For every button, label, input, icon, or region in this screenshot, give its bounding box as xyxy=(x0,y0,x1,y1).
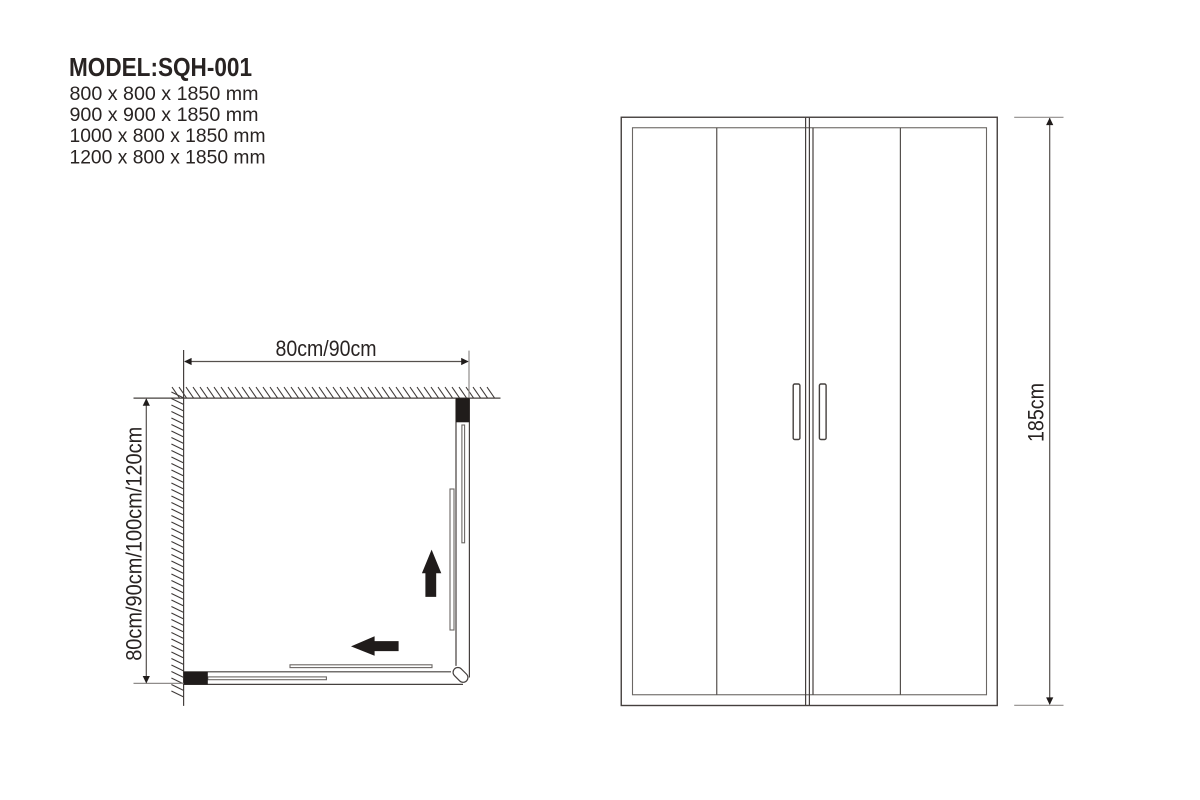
svg-text:800 x 800 x 1850 mm: 800 x 800 x 1850 mm xyxy=(70,83,259,105)
svg-text:900 x 900 x 1850 mm: 900 x 900 x 1850 mm xyxy=(70,104,259,126)
svg-text:1200 x 800 x 1850 mm: 1200 x 800 x 1850 mm xyxy=(70,146,266,168)
svg-text:MODEL:SQH-001: MODEL:SQH-001 xyxy=(69,52,252,82)
svg-text:80cm/90cm/100cm/120cm: 80cm/90cm/100cm/120cm xyxy=(122,427,147,661)
svg-text:185cm: 185cm xyxy=(1024,383,1049,442)
svg-text:1000 x 800 x 1850 mm: 1000 x 800 x 1850 mm xyxy=(70,125,266,147)
svg-text:80cm/90cm: 80cm/90cm xyxy=(276,336,377,361)
